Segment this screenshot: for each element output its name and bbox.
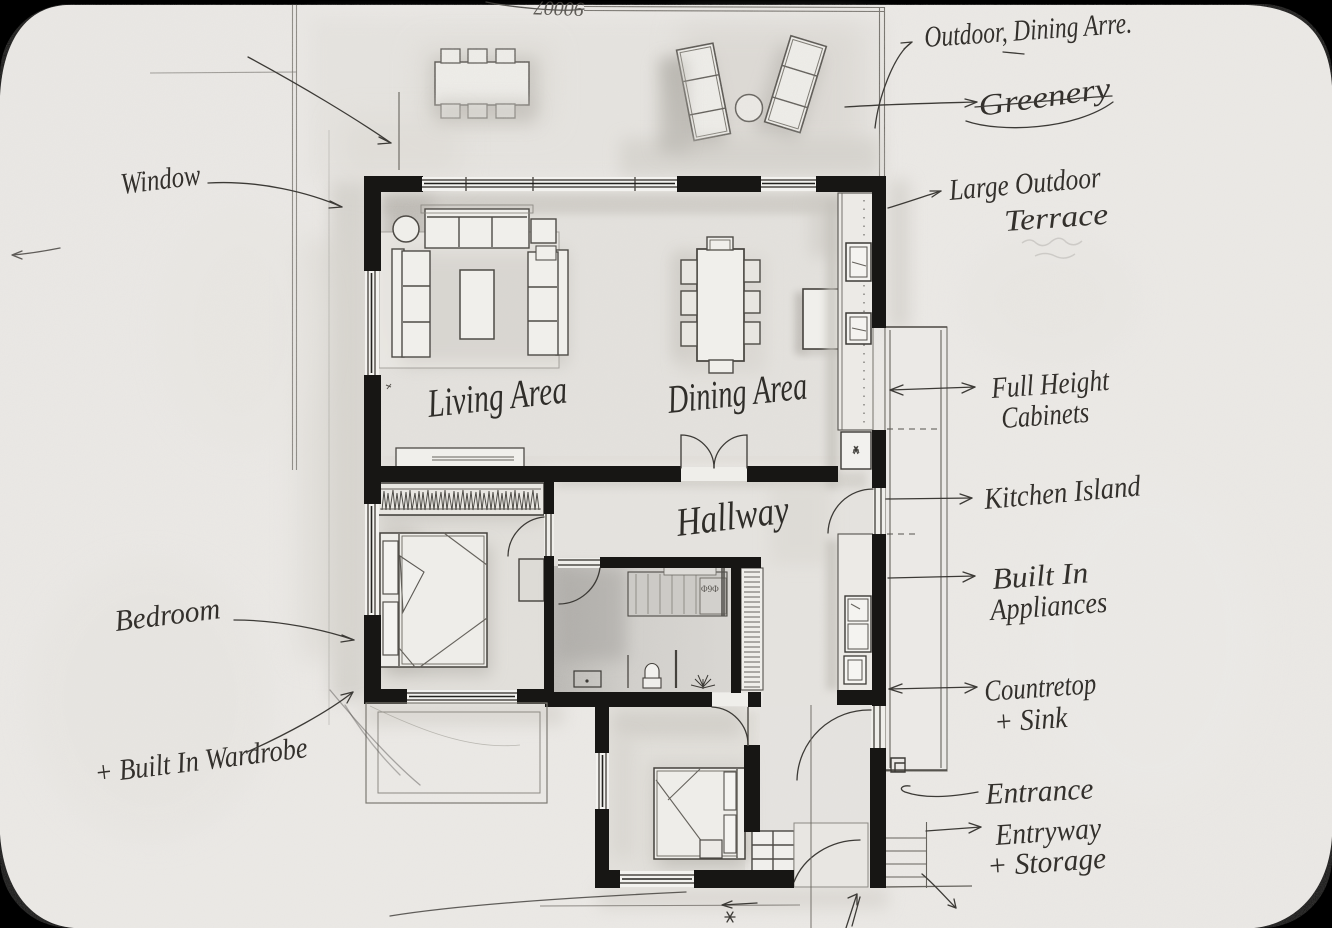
svg-text:Cabinets: Cabinets [1000,396,1090,435]
svg-text:Φ9Φ: Φ9Φ [701,584,719,594]
svg-text:+ Sink: + Sink [993,701,1069,739]
svg-text:Entrance: Entrance [984,772,1095,811]
